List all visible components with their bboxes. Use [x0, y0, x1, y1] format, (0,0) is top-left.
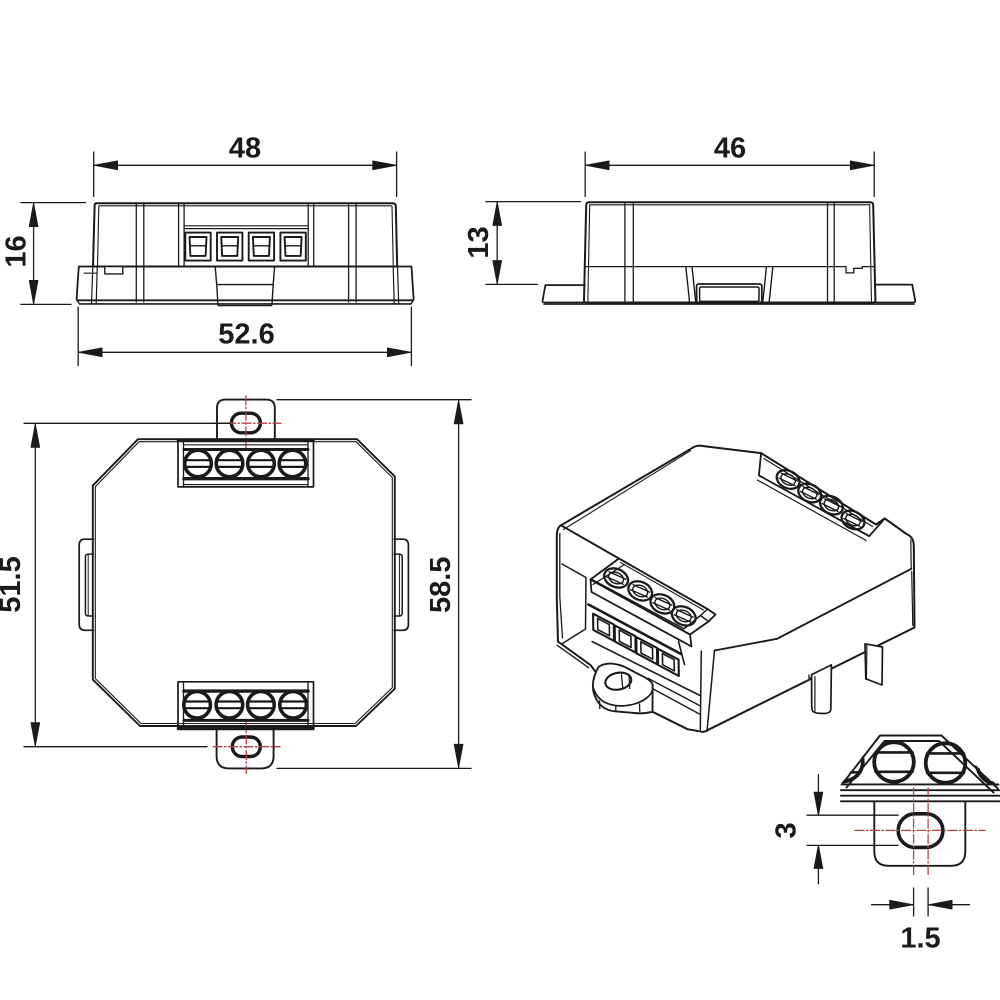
svg-text:51.5: 51.5 [0, 556, 27, 612]
svg-text:3: 3 [771, 822, 803, 838]
svg-text:13: 13 [463, 226, 495, 258]
svg-text:48: 48 [229, 133, 261, 165]
svg-text:52.6: 52.6 [218, 319, 274, 351]
svg-text:16: 16 [1, 235, 33, 267]
svg-text:1.5: 1.5 [900, 923, 940, 955]
svg-text:46: 46 [714, 133, 746, 165]
svg-text:58.5: 58.5 [425, 557, 457, 613]
